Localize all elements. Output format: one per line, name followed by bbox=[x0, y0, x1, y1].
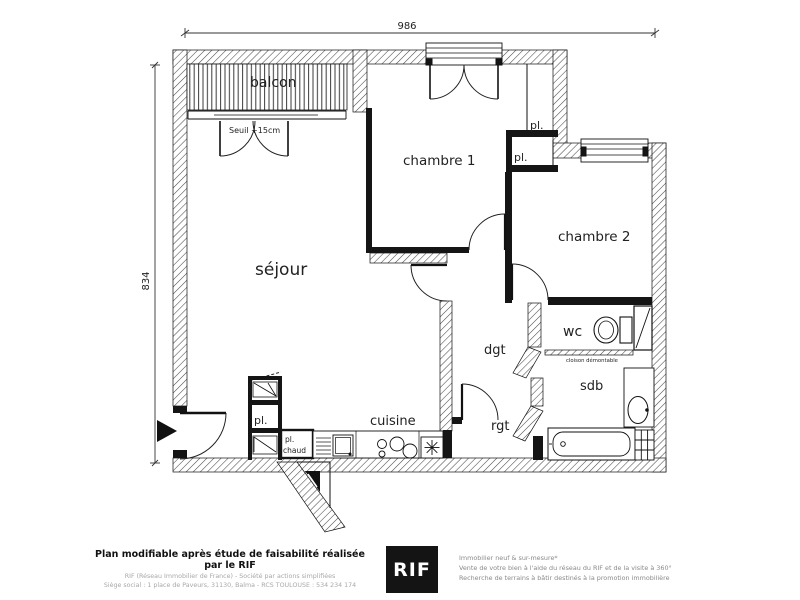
dimension-left bbox=[150, 62, 160, 466]
footer-service-line-1: Immobilier neuf & sur-mesure* bbox=[459, 553, 759, 563]
rif-logo-text: RIF bbox=[393, 559, 431, 581]
room-label-sdb: sdb bbox=[580, 379, 603, 394]
wall-sdb-left-lower bbox=[533, 436, 543, 460]
balcony bbox=[187, 64, 347, 119]
room-label-rgt: rgt bbox=[491, 419, 509, 434]
entrance-stub-bottom bbox=[173, 450, 187, 458]
footer: Plan modifiable après étude de faisabili… bbox=[0, 540, 800, 600]
toilet-icon bbox=[594, 317, 632, 343]
dim-width-label: 986 bbox=[397, 21, 416, 32]
wall-pl2-bottom bbox=[506, 165, 558, 172]
door-chambre1 bbox=[469, 214, 505, 250]
wall-sdb-partition bbox=[531, 378, 543, 406]
kitchen-counter bbox=[313, 431, 443, 458]
wall-ch1-bottom bbox=[366, 247, 469, 253]
wall-left bbox=[173, 50, 187, 406]
closet-label-pl-chambre1: pl. bbox=[530, 119, 544, 132]
room-label-chambre2: chambre 2 bbox=[558, 229, 630, 245]
wall-ch1-bottom-hatch bbox=[370, 253, 447, 263]
wall-balcony-right bbox=[353, 50, 367, 112]
sdb-door-leaf bbox=[513, 406, 543, 441]
wall-top-ch2-left bbox=[553, 143, 585, 158]
room-label-chambre1: chambre 1 bbox=[403, 153, 475, 169]
floor-plan-drawing: 986 834 balcon séjour chambre 1 chambre … bbox=[0, 0, 800, 540]
entrance-arrow-icon bbox=[157, 420, 177, 442]
window-chambre1 bbox=[426, 43, 502, 65]
wall-cuisine-divider bbox=[443, 430, 452, 458]
rif-logo: RIF bbox=[386, 546, 438, 593]
sink-icon bbox=[624, 368, 654, 427]
closet-wc bbox=[634, 306, 652, 350]
wall-ch1-left bbox=[366, 108, 372, 253]
footer-address-line: Siège social : 1 place de Paveurs, 31130… bbox=[95, 582, 365, 591]
window-chambre2 bbox=[581, 139, 648, 162]
door-sejour-dgt bbox=[411, 265, 447, 301]
wc-door-leaf bbox=[513, 347, 541, 378]
room-label-sejour: séjour bbox=[255, 260, 307, 280]
dim-height-label: 834 bbox=[141, 271, 152, 290]
doors bbox=[180, 65, 548, 459]
room-label-balcon: balcon bbox=[250, 75, 297, 91]
closet-label-pl-sejour: pl. bbox=[254, 414, 268, 427]
vent-icon bbox=[421, 437, 443, 458]
closet-label-pl-chaud-1: pl. bbox=[285, 435, 294, 444]
washing-grid-icon bbox=[635, 430, 654, 460]
footer-left-block: Plan modifiable après étude de faisabili… bbox=[95, 549, 365, 590]
footer-service-line-3: Recherche de terrains à bâtir destinés à… bbox=[459, 573, 759, 583]
cloison-demontable-wall bbox=[545, 350, 633, 355]
footer-title: Plan modifiable après étude de faisabili… bbox=[95, 549, 365, 571]
wall-corridor bbox=[440, 301, 452, 431]
wall-wc-partition bbox=[528, 303, 541, 347]
footer-right-block: Immobilier neuf & sur-mesure* Vente de v… bbox=[459, 553, 759, 583]
bathtub-icon bbox=[548, 428, 635, 460]
room-label-dgt: dgt bbox=[484, 343, 506, 358]
floor-plan-page: 986 834 balcon séjour chambre 1 chambre … bbox=[0, 0, 800, 600]
closet-label-pl-chambre2: pl. bbox=[514, 151, 528, 164]
wall-top-left bbox=[173, 50, 428, 64]
annotation-seuil: Seuil +15cm bbox=[229, 126, 280, 135]
dimension-top bbox=[181, 28, 659, 38]
door-chambre1-window bbox=[430, 65, 498, 99]
closet-label-pl-chaud-2: chaud bbox=[283, 446, 306, 455]
closet-fronts bbox=[527, 64, 553, 165]
wall-rgt-stub bbox=[452, 417, 462, 424]
room-label-wc: wc bbox=[563, 324, 582, 340]
footer-service-line-2: Vente de votre bien à l'aide du réseau d… bbox=[459, 563, 759, 573]
wall-wc-top bbox=[548, 297, 652, 305]
door-chambre2 bbox=[512, 264, 548, 300]
annotation-cloison: cloison démontable bbox=[566, 357, 618, 364]
room-label-cuisine: cuisine bbox=[370, 414, 416, 429]
door-rgt bbox=[462, 384, 498, 420]
footer-company-line: RIF (Réseau Immobilier de France) - Soci… bbox=[95, 573, 365, 582]
